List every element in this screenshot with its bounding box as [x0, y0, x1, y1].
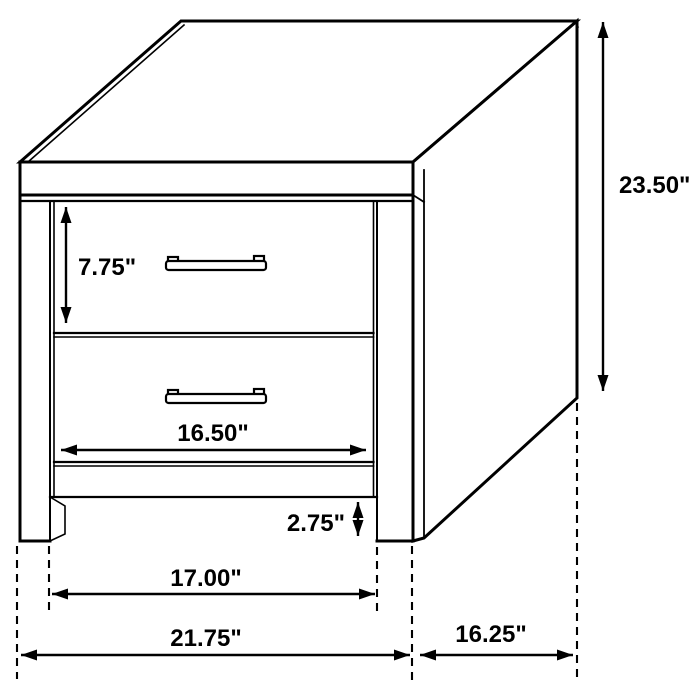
dim-drawer-height: 7.75"	[66, 207, 136, 323]
dim-label-overall-width: 21.75"	[170, 625, 241, 652]
legs	[20, 497, 413, 541]
dim-base-height: 2.75"	[287, 502, 358, 537]
dim-depth: 16.25"	[420, 621, 573, 655]
dim-drawer-width: 16.50"	[61, 420, 366, 450]
handle-bar	[166, 394, 266, 403]
dim-label-leg-span: 17.00"	[170, 565, 241, 592]
top-drawer-handle-icon	[166, 256, 266, 270]
dim-label-base-height: 2.75"	[287, 510, 345, 537]
nightstand-illustration	[20, 21, 578, 541]
top-front-edge	[20, 162, 413, 195]
dim-label-depth: 16.25"	[455, 621, 526, 648]
dim-label-overall-height: 23.50"	[619, 172, 690, 199]
dimension-diagram: 7.75" 23.50" 16.50" 2.75" 17.00" 21.75" …	[0, 0, 700, 700]
front-frame	[20, 162, 413, 541]
nightstand-dimension-svg: 7.75" 23.50" 16.50" 2.75" 17.00" 21.75" …	[0, 0, 700, 700]
dim-overall-height: 23.50"	[603, 22, 690, 391]
dim-leg-span: 17.00"	[52, 565, 375, 594]
handle-bar	[166, 261, 266, 270]
dim-label-drawer-width: 16.50"	[177, 420, 248, 447]
bottom-drawer-handle-icon	[166, 389, 266, 403]
dim-label-drawer-height: 7.75"	[78, 254, 136, 281]
left-leg-inner-face	[50, 497, 65, 541]
dim-overall-width: 21.75"	[21, 625, 410, 655]
